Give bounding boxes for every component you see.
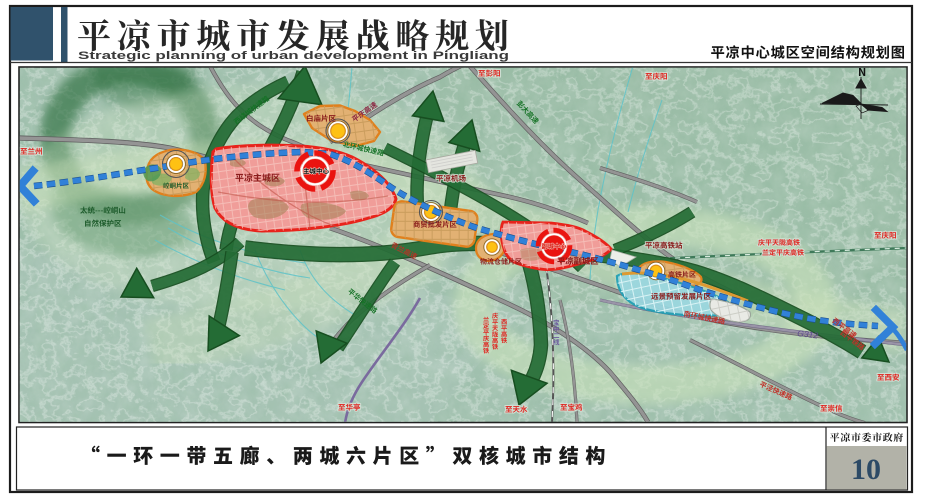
svg-text:10: 10 xyxy=(851,453,881,486)
svg-text:Strategic planning of urban de: Strategic planning of urban development … xyxy=(78,50,509,62)
